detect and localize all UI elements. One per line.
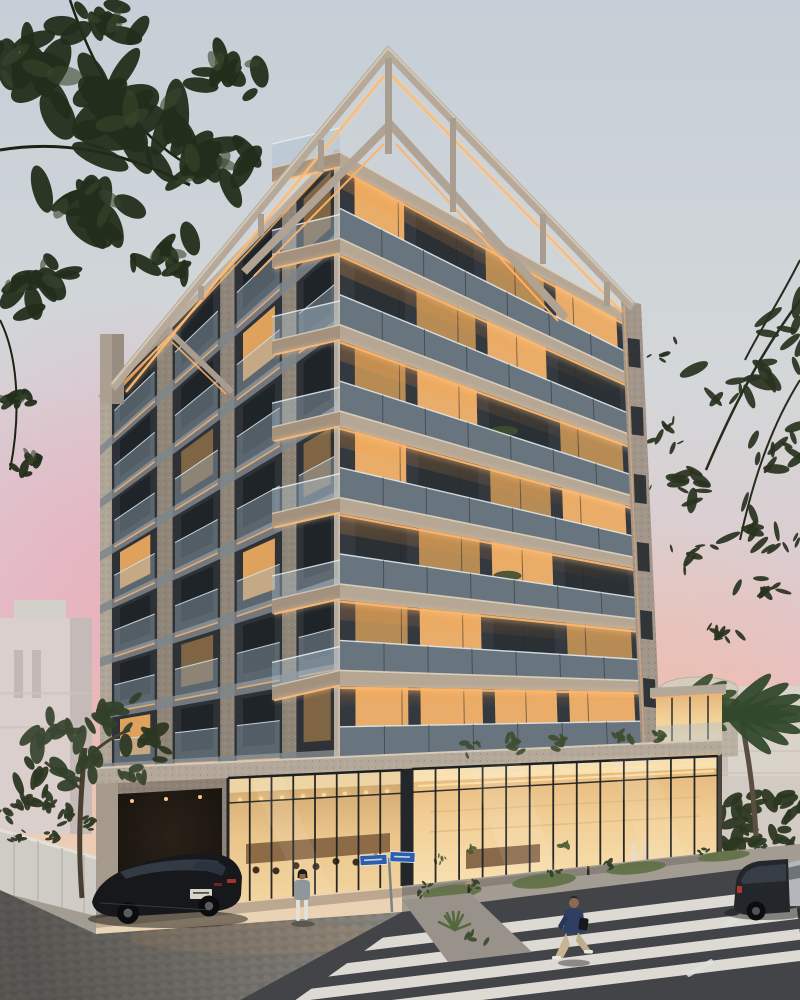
pier-window	[634, 474, 647, 504]
crown-post	[258, 214, 264, 236]
wheel-rim	[205, 902, 213, 910]
bollard-light	[586, 863, 590, 867]
railing-mullion	[511, 436, 512, 461]
pendant-light	[322, 793, 326, 797]
balcony-railing	[237, 721, 280, 757]
architectural-render-canvas	[0, 0, 800, 1000]
person-shadow	[291, 921, 315, 927]
pendant-light	[343, 792, 347, 796]
balcony-railing	[175, 728, 218, 760]
railing-mullion	[516, 652, 517, 677]
crown-post	[604, 282, 610, 306]
pier-window	[640, 610, 653, 640]
pendant-light	[301, 794, 305, 798]
crown-post	[385, 58, 392, 154]
crown-post	[318, 140, 324, 172]
interior-chair	[273, 867, 280, 874]
plate-text	[193, 892, 209, 894]
storefront-corner-post	[402, 769, 412, 888]
man-head	[569, 898, 579, 908]
bollard	[587, 866, 590, 875]
wheel-rim	[124, 909, 133, 918]
portal-downlight	[130, 799, 134, 803]
person-shadow	[558, 960, 590, 967]
wheel-rim	[752, 907, 760, 915]
woman-leg	[304, 898, 308, 920]
taillight	[214, 883, 222, 886]
pendant-light	[385, 789, 389, 793]
portal-downlight	[198, 795, 202, 799]
pendant-light	[364, 790, 368, 794]
foliage-tuft	[163, 110, 175, 145]
railing-mullion	[507, 292, 508, 317]
woman-leg	[296, 898, 300, 921]
pier-window	[628, 338, 641, 368]
suv-taillight	[737, 886, 742, 893]
railing-mullion	[509, 364, 510, 389]
scene-svg	[0, 0, 800, 1000]
pier-window	[637, 542, 650, 572]
railing-mullion	[514, 580, 515, 605]
man-shoe	[552, 956, 561, 960]
podium-side-return	[718, 754, 722, 853]
interior-chair	[253, 867, 260, 874]
man-shoe	[584, 950, 593, 954]
mannequin-head	[632, 844, 637, 849]
crown-post	[198, 286, 204, 300]
crown-post	[450, 118, 456, 212]
man-bag	[578, 918, 589, 931]
woman-top	[294, 880, 310, 900]
taillight	[227, 879, 236, 883]
bollard-light	[467, 881, 471, 885]
railing-mullion	[512, 508, 513, 533]
bollard	[468, 884, 471, 893]
crown-post	[540, 214, 546, 264]
pier-window	[631, 406, 644, 436]
portal-downlight	[164, 797, 168, 801]
